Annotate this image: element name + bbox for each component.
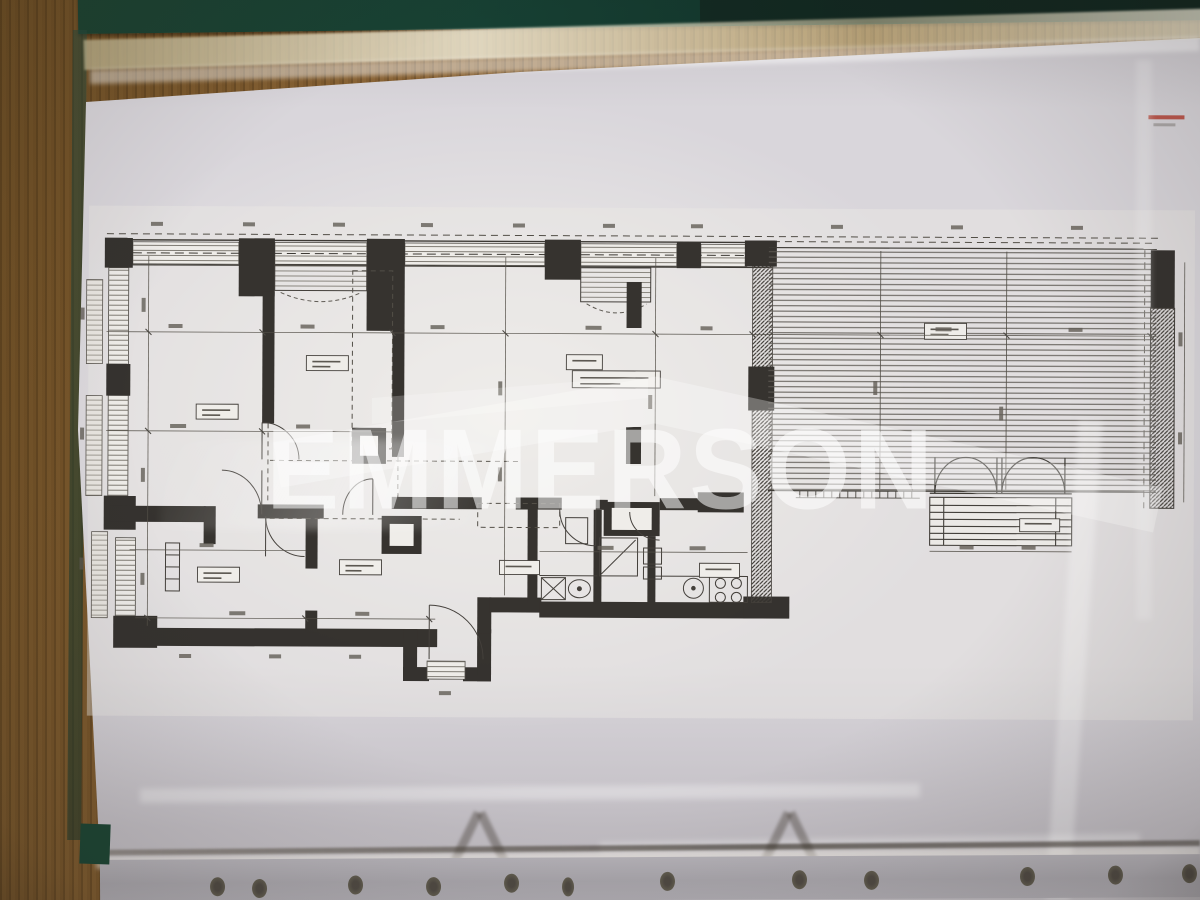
porch-label-box [1020, 519, 1060, 532]
binder-hole [792, 870, 807, 889]
binder-hole [504, 874, 519, 893]
binder-cover-corner [79, 823, 110, 864]
sleeve-wrinkle-highlight [1136, 60, 1152, 620]
window-hatch [133, 242, 747, 267]
binder-hole [562, 877, 574, 896]
red-annotation-mark [1148, 115, 1184, 126]
terrace-corner-pier [1151, 250, 1175, 308]
terrace-right-wall [1150, 308, 1175, 508]
binder-hole [426, 877, 441, 896]
binder-hole [864, 871, 879, 890]
binder-hole [1182, 864, 1197, 883]
binder-hole [348, 876, 363, 895]
binder-hole [252, 879, 267, 898]
entry-threshold-hatch [427, 661, 465, 679]
binder-hole [1020, 867, 1035, 886]
binder-hole [210, 877, 225, 896]
binder-hole [1108, 866, 1123, 885]
sleeve-bottom-band [100, 854, 1200, 900]
binder-hole [660, 872, 675, 891]
binder-photo: EMMERSON [0, 0, 1200, 900]
sleeve-sheen [160, 440, 580, 530]
